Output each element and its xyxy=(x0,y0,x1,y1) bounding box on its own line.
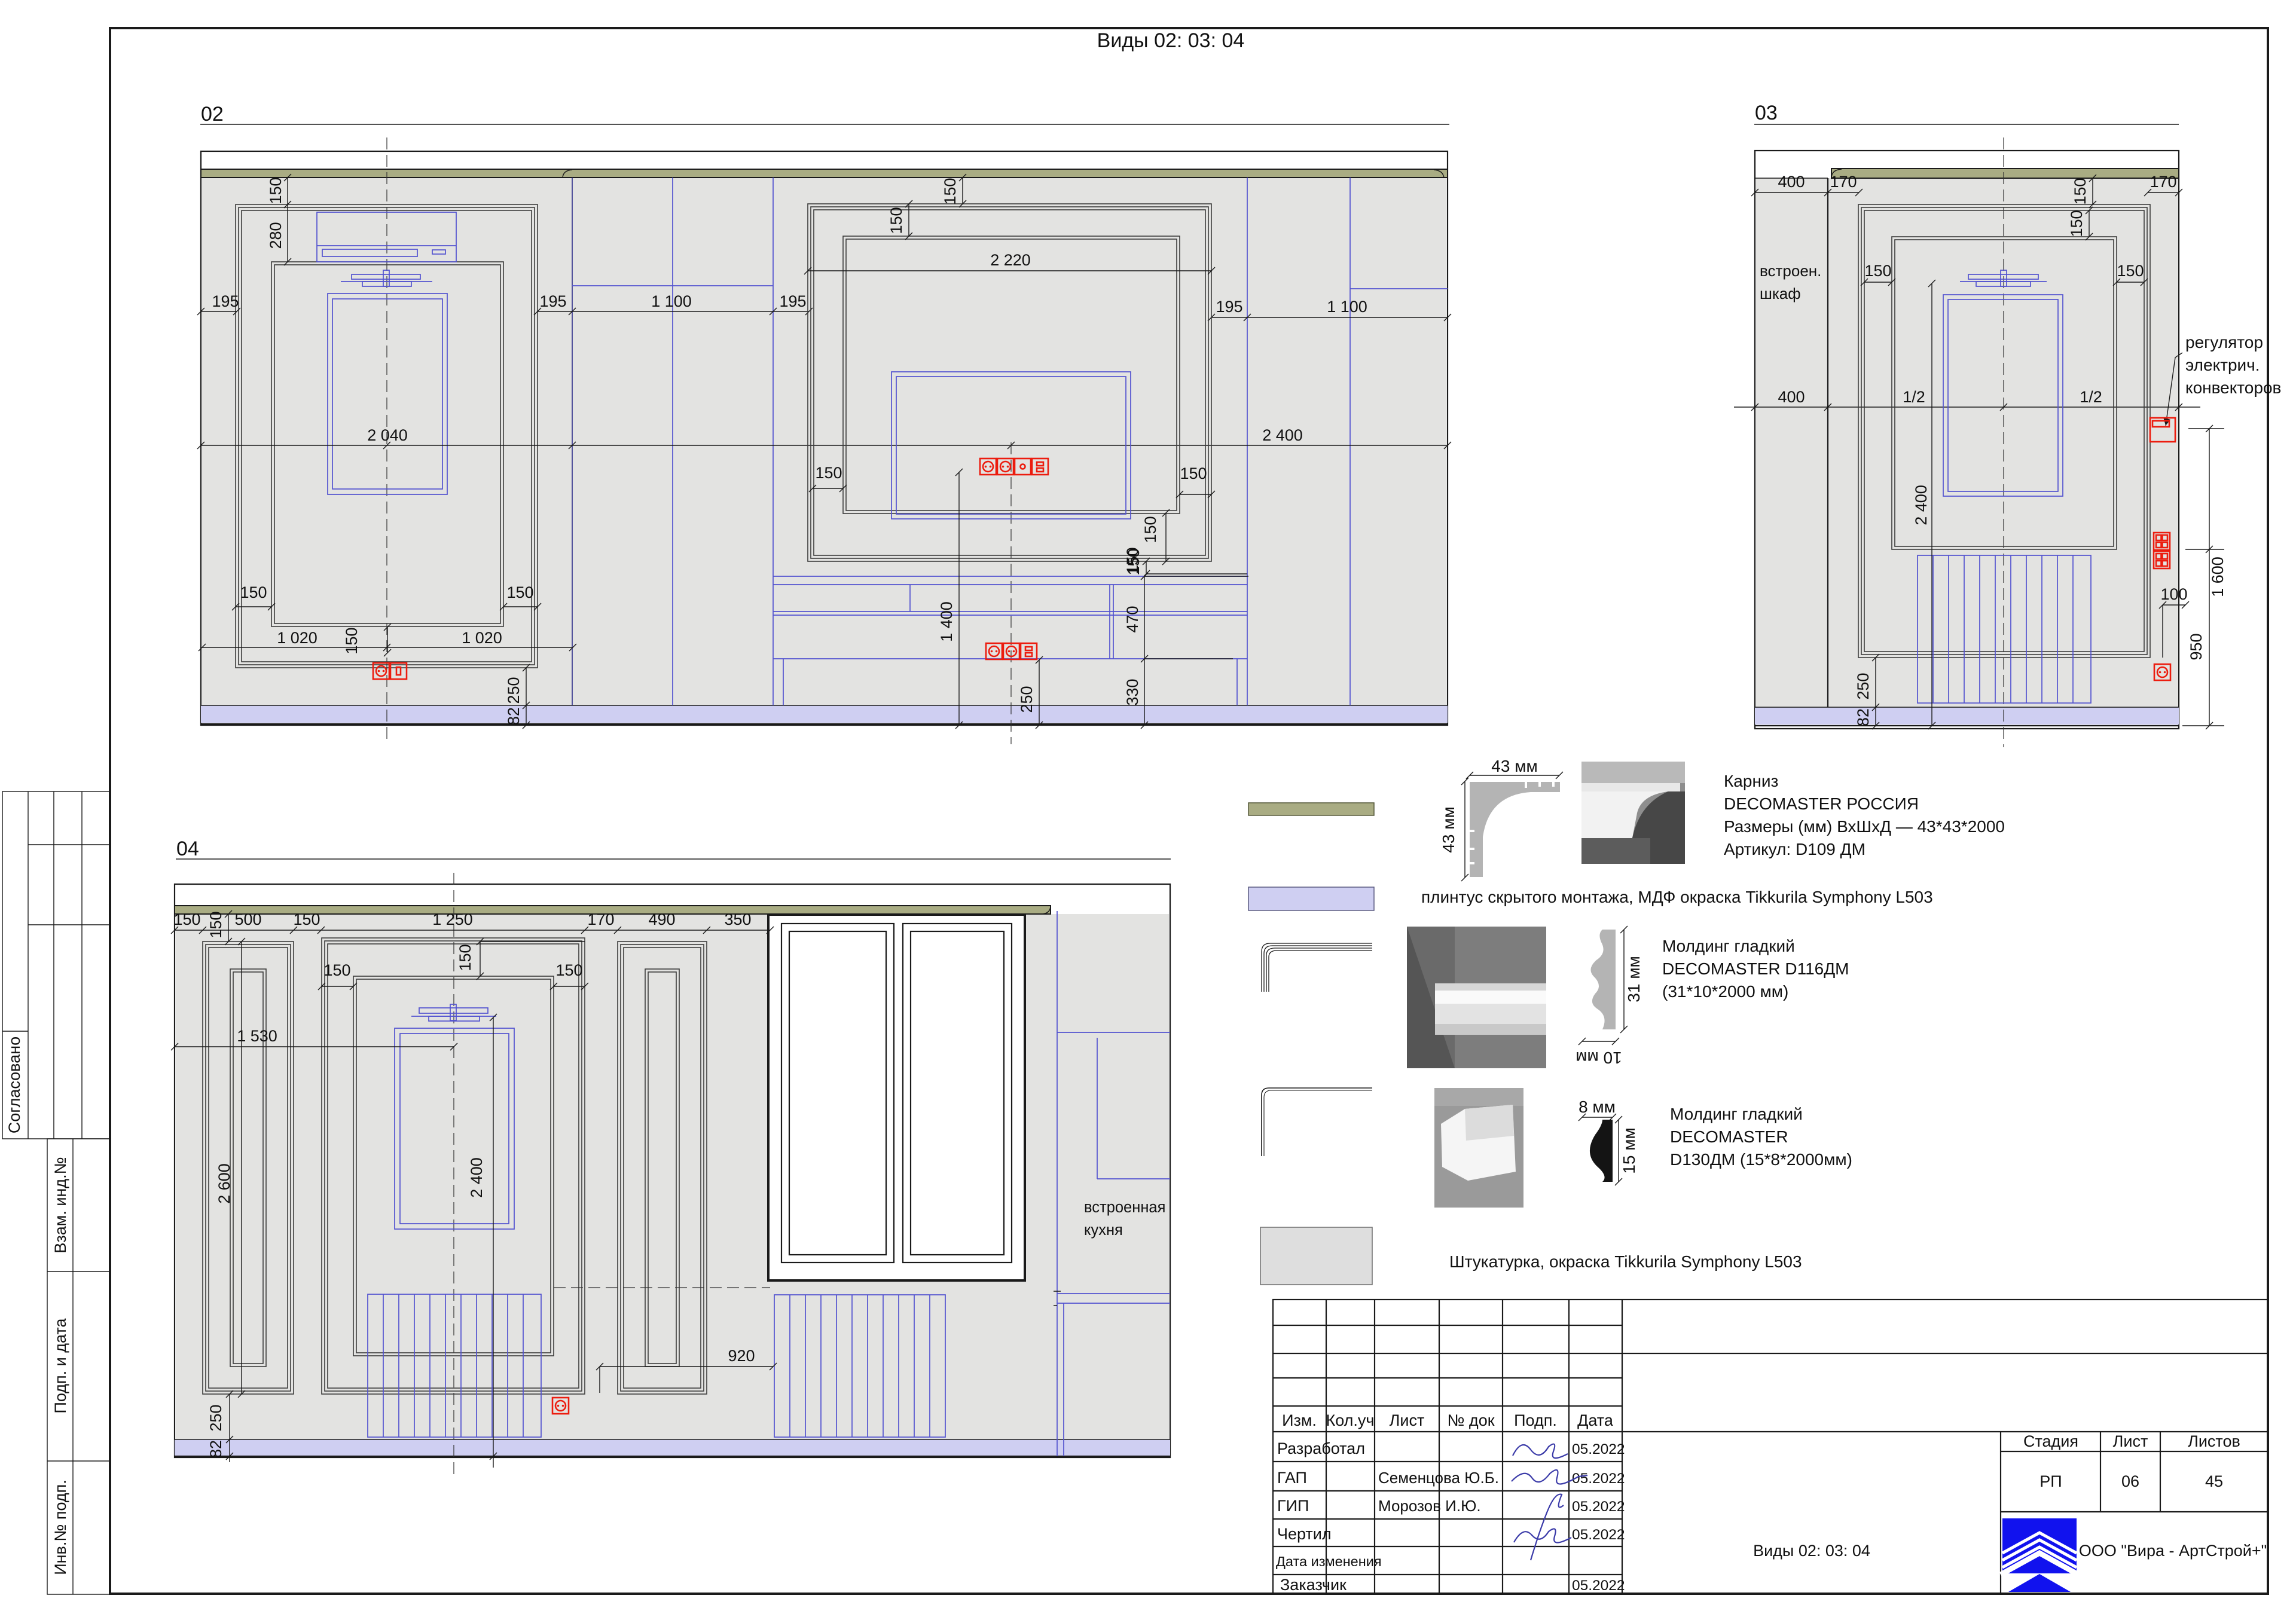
svg-text:150: 150 xyxy=(2068,210,2086,237)
svg-text:Подп. и дата: Подп. и дата xyxy=(51,1318,69,1413)
svg-text:350: 350 xyxy=(724,910,751,928)
svg-text:конвекторов: конвекторов xyxy=(2185,378,2281,397)
svg-text:150: 150 xyxy=(506,583,533,601)
svg-text:ГИП: ГИП xyxy=(1277,1497,1309,1515)
svg-text:43 мм: 43 мм xyxy=(1439,806,1458,852)
svg-text:150: 150 xyxy=(1180,464,1207,482)
svg-text:1 100: 1 100 xyxy=(651,292,692,310)
svg-text:45: 45 xyxy=(2205,1472,2223,1490)
svg-text:150: 150 xyxy=(941,178,959,204)
svg-text:150: 150 xyxy=(887,207,905,234)
svg-text:Размеры (мм) ВхШхД — 43*43*200: Размеры (мм) ВхШхД — 43*43*2000 xyxy=(1724,817,2005,836)
svg-text:04: 04 xyxy=(176,838,199,860)
svg-text:Лист: Лист xyxy=(2113,1432,2148,1450)
svg-text:150: 150 xyxy=(1864,262,1891,280)
svg-text:Молдинг гладкий: Молдинг гладкий xyxy=(1662,937,1795,955)
svg-text:170: 170 xyxy=(2150,173,2176,191)
svg-text:400: 400 xyxy=(1778,388,1805,406)
svg-text:Листов: Листов xyxy=(2188,1432,2240,1450)
svg-text:1/2: 1/2 xyxy=(2080,388,2102,406)
svg-text:Дата: Дата xyxy=(1577,1411,1614,1429)
svg-text:Артикул: D109 ДМ: Артикул: D109 ДМ xyxy=(1724,840,1865,858)
svg-text:05.2022: 05.2022 xyxy=(1572,1527,1625,1543)
svg-text:2 600: 2 600 xyxy=(215,1163,233,1204)
svg-text:150: 150 xyxy=(456,944,474,971)
svg-text:1 020: 1 020 xyxy=(462,629,502,647)
svg-text:150: 150 xyxy=(2117,262,2144,280)
svg-text:Виды 02: 03: 04: Виды 02: 03: 04 xyxy=(1097,29,1245,52)
svg-text:15 мм: 15 мм xyxy=(1620,1127,1638,1173)
svg-text:250: 250 xyxy=(207,1404,225,1431)
svg-text:250: 250 xyxy=(1018,686,1036,713)
svg-text:170: 170 xyxy=(1830,173,1857,191)
svg-text:Виды 02: 03: 04: Виды 02: 03: 04 xyxy=(1753,1542,1870,1560)
svg-text:Заказчик: Заказчик xyxy=(1280,1576,1347,1594)
svg-text:490: 490 xyxy=(648,910,675,928)
svg-text:100: 100 xyxy=(2160,585,2187,603)
svg-text:950: 950 xyxy=(2187,633,2205,660)
svg-text:06: 06 xyxy=(2121,1472,2139,1490)
svg-text:2 400: 2 400 xyxy=(1262,426,1303,444)
svg-text:170: 170 xyxy=(587,910,614,928)
svg-text:1 100: 1 100 xyxy=(1327,298,1367,316)
svg-text:Изм.: Изм. xyxy=(1282,1411,1317,1429)
svg-text:150: 150 xyxy=(1141,516,1159,543)
svg-text:150: 150 xyxy=(267,177,285,204)
svg-text:250: 250 xyxy=(505,677,523,704)
svg-text:82: 82 xyxy=(207,1440,225,1458)
svg-text:плинтус скрытого монтажа, МДФ: плинтус скрытого монтажа, МДФ окраска Ti… xyxy=(1421,888,1933,906)
svg-text:195: 195 xyxy=(779,292,806,310)
svg-text:82: 82 xyxy=(505,707,523,725)
svg-text:150: 150 xyxy=(555,961,582,979)
svg-text:(31*10*2000 мм): (31*10*2000 мм) xyxy=(1662,982,1788,1001)
svg-text:150: 150 xyxy=(323,961,350,979)
svg-text:470: 470 xyxy=(1123,606,1141,632)
svg-text:31 мм: 31 мм xyxy=(1625,956,1643,1002)
svg-text:D130ДМ (15*8*2000мм): D130ДМ (15*8*2000мм) xyxy=(1670,1150,1852,1169)
svg-text:Согласовано: Согласовано xyxy=(5,1037,23,1133)
svg-text:250: 250 xyxy=(1854,673,1872,699)
svg-text:№ док: № док xyxy=(1447,1411,1494,1429)
svg-text:1 600: 1 600 xyxy=(2209,557,2227,597)
svg-text:2 400: 2 400 xyxy=(468,1157,486,1198)
svg-text:150: 150 xyxy=(2071,178,2089,204)
svg-text:1 400: 1 400 xyxy=(938,601,955,642)
svg-text:DECOMASTER РОССИЯ: DECOMASTER РОССИЯ xyxy=(1724,794,1919,813)
svg-text:Подп.: Подп. xyxy=(1514,1411,1557,1429)
svg-text:150: 150 xyxy=(207,911,225,938)
svg-text:Семенцова Ю.Б.: Семенцова Ю.Б. xyxy=(1378,1469,1499,1487)
svg-text:Чертил: Чертил xyxy=(1277,1525,1332,1543)
svg-text:2 400: 2 400 xyxy=(1912,485,1930,525)
svg-text:05.2022: 05.2022 xyxy=(1572,1441,1625,1457)
svg-text:10 мм: 10 мм xyxy=(1576,1049,1622,1067)
svg-text:43 мм: 43 мм xyxy=(1491,757,1537,775)
svg-text:05.2022: 05.2022 xyxy=(1572,1578,1625,1594)
svg-text:280: 280 xyxy=(267,222,285,249)
svg-text:1 250: 1 250 xyxy=(432,910,473,928)
svg-text:150: 150 xyxy=(293,910,320,928)
svg-text:195: 195 xyxy=(1216,298,1242,316)
svg-text:электрич.: электрич. xyxy=(2185,356,2260,374)
svg-text:кухня: кухня xyxy=(1084,1222,1123,1239)
svg-text:02: 02 xyxy=(201,103,224,126)
svg-text:150: 150 xyxy=(343,627,361,654)
svg-text:150: 150 xyxy=(815,464,842,482)
svg-text:82: 82 xyxy=(1854,708,1872,726)
svg-text:150: 150 xyxy=(173,910,200,928)
svg-text:1 020: 1 020 xyxy=(277,629,317,647)
svg-text:Карниз: Карниз xyxy=(1724,772,1778,790)
svg-text:Инв.№ подп.: Инв.№ подп. xyxy=(51,1480,69,1575)
svg-text:03: 03 xyxy=(1755,102,1778,124)
svg-text:400: 400 xyxy=(1778,173,1805,191)
svg-text:ООО "Вира - АртСтрой+": ООО "Вира - АртСтрой+" xyxy=(2079,1542,2267,1560)
svg-text:Молдинг гладкий: Молдинг гладкий xyxy=(1670,1105,1803,1123)
svg-text:Дата изменения: Дата изменения xyxy=(1276,1554,1382,1569)
svg-text:регулятор: регулятор xyxy=(2185,333,2263,352)
svg-text:Кол.уч: Кол.уч xyxy=(1326,1411,1375,1429)
svg-text:Лист: Лист xyxy=(1390,1411,1425,1429)
svg-text:Стадия: Стадия xyxy=(2023,1432,2078,1450)
svg-text:150: 150 xyxy=(1123,547,1141,574)
svg-text:1 530: 1 530 xyxy=(237,1027,277,1045)
svg-text:Штукатурка, окраска Tikkurila: Штукатурка, окраска Tikkurila Symphony L… xyxy=(1449,1252,1802,1271)
svg-text:150: 150 xyxy=(240,583,267,601)
svg-text:8 мм: 8 мм xyxy=(1578,1098,1616,1116)
svg-text:1/2: 1/2 xyxy=(1903,388,1925,406)
svg-text:2 220: 2 220 xyxy=(990,251,1031,269)
svg-text:Морозов И.Ю.: Морозов И.Ю. xyxy=(1378,1497,1481,1515)
svg-text:330: 330 xyxy=(1123,678,1141,705)
svg-text:DECOMASTER: DECOMASTER xyxy=(1670,1127,1788,1146)
svg-text:195: 195 xyxy=(539,292,566,310)
svg-text:встроен.: встроен. xyxy=(1760,262,1821,280)
svg-text:Взам. инд.№: Взам. инд.№ xyxy=(51,1157,69,1253)
svg-text:05.2022: 05.2022 xyxy=(1572,1471,1625,1487)
svg-text:920: 920 xyxy=(728,1347,755,1365)
svg-text:500: 500 xyxy=(234,910,261,928)
svg-text:2 040: 2 040 xyxy=(367,426,408,444)
svg-text:встроенная: встроенная xyxy=(1084,1199,1165,1216)
svg-text:РП: РП xyxy=(2039,1472,2062,1490)
svg-text:DECOMASTER D116ДМ: DECOMASTER D116ДМ xyxy=(1662,959,1849,978)
svg-text:195: 195 xyxy=(212,292,239,310)
svg-text:05.2022: 05.2022 xyxy=(1572,1499,1625,1515)
svg-text:ГАП: ГАП xyxy=(1277,1469,1307,1487)
svg-text:шкаф: шкаф xyxy=(1760,285,1801,302)
svg-text:Разработал: Разработал xyxy=(1277,1439,1365,1457)
